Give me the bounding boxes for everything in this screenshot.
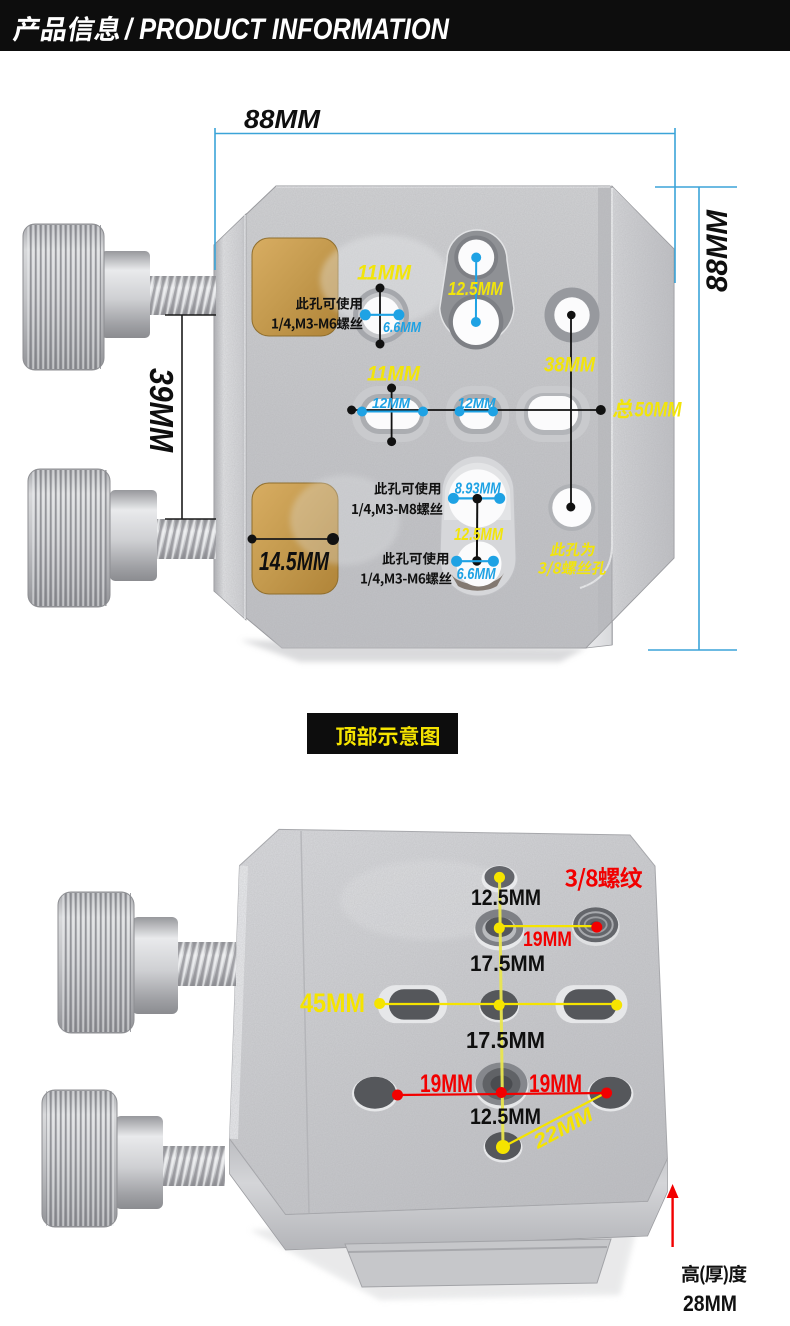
svg-text:6.6MM: 6.6MM [383,320,422,336]
svg-text:88MM: 88MM [701,209,734,292]
svg-text:12MM: 12MM [458,395,496,412]
svg-text:14.5MM: 14.5MM [259,548,330,576]
svg-text:38MM: 38MM [544,354,595,377]
svg-text:50MM: 50MM [635,398,683,422]
svg-text:12.5MM: 12.5MM [454,524,503,544]
svg-text:6.6MM: 6.6MM [457,566,497,583]
svg-text:28MM: 28MM [683,1291,737,1316]
svg-text:88MM: 88MM [244,104,321,134]
svg-text:17.5MM: 17.5MM [470,951,545,976]
svg-text:11MM: 11MM [357,262,411,285]
svg-text:12.5MM: 12.5MM [470,1104,541,1129]
svg-text:45MM: 45MM [300,988,365,1018]
svg-text:12.5MM: 12.5MM [448,278,503,299]
svg-text:39MM: 39MM [143,368,180,453]
svg-text:12.5MM: 12.5MM [471,885,541,910]
svg-text:12MM: 12MM [372,395,410,412]
svg-text:19MM: 19MM [523,928,572,951]
svg-text:19MM: 19MM [529,1070,582,1098]
svg-text:/ PRODUCT INFORMATION: / PRODUCT INFORMATION [123,13,450,46]
svg-text:19MM: 19MM [420,1070,473,1098]
svg-text:11MM: 11MM [367,363,420,386]
svg-text:17.5MM: 17.5MM [466,1027,545,1053]
